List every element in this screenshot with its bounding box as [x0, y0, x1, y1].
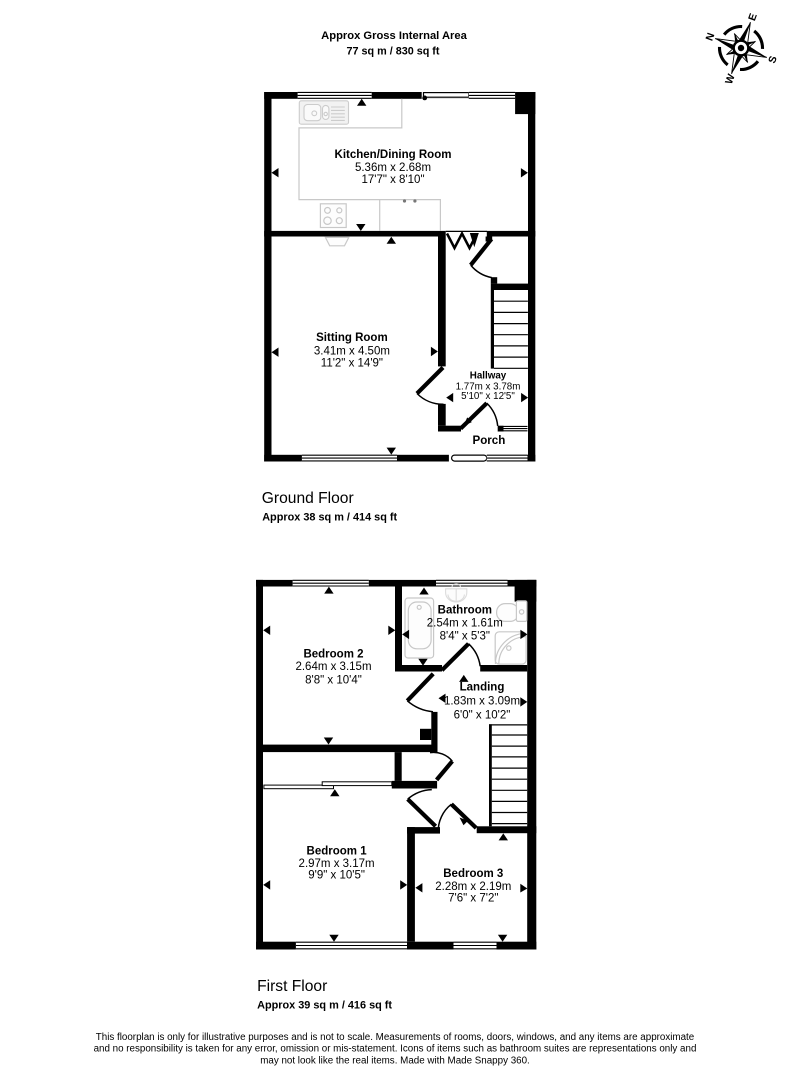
svg-text:8'4" x 5'3": 8'4" x 5'3" — [440, 630, 490, 642]
svg-text:Hallway: Hallway — [470, 370, 507, 381]
svg-text:5.36m x 2.68m: 5.36m x 2.68m — [355, 162, 431, 174]
svg-text:Approx Gross Internal Area: Approx Gross Internal Area — [321, 30, 467, 42]
svg-text:S: S — [766, 54, 780, 65]
svg-text:2.54m x 1.61m: 2.54m x 1.61m — [427, 618, 503, 630]
svg-text:Sitting Room: Sitting Room — [316, 332, 388, 344]
svg-text:may not look like the real ite: may not look like the real items. Made w… — [260, 1055, 530, 1066]
svg-text:Approx 39 sq m / 416 sq ft: Approx 39 sq m / 416 sq ft — [257, 999, 392, 1011]
svg-text:Bathroom: Bathroom — [438, 605, 492, 617]
svg-text:Bedroom 3: Bedroom 3 — [443, 868, 503, 880]
svg-text:9'9" x 10'5": 9'9" x 10'5" — [308, 870, 365, 882]
svg-text:Bedroom 1: Bedroom 1 — [307, 845, 368, 857]
svg-text:E: E — [746, 12, 760, 23]
svg-text:2.97m x 3.17m: 2.97m x 3.17m — [299, 858, 375, 870]
svg-text:6'0" x 10'2": 6'0" x 10'2" — [454, 709, 511, 721]
svg-text:Kitchen/Dining Room: Kitchen/Dining Room — [335, 149, 452, 161]
svg-text:Ground Floor: Ground Floor — [262, 490, 354, 507]
svg-text:Landing: Landing — [460, 682, 505, 694]
svg-text:17'7" x 8'10": 17'7" x 8'10" — [361, 174, 424, 186]
svg-text:W: W — [723, 72, 738, 86]
svg-text:First Floor: First Floor — [257, 978, 327, 995]
svg-text:and no responsibility is taken: and no responsibility is taken for any e… — [94, 1044, 697, 1055]
svg-text:N: N — [704, 31, 718, 42]
svg-text:This floorplan is only for ill: This floorplan is only for illustrative … — [96, 1032, 695, 1043]
svg-text:77 sq m / 830 sq ft: 77 sq m / 830 sq ft — [346, 45, 439, 57]
svg-text:Approx 38 sq m / 414 sq ft: Approx 38 sq m / 414 sq ft — [262, 512, 397, 524]
svg-text:3.41m x 4.50m: 3.41m x 4.50m — [314, 345, 390, 357]
svg-text:7'6" x 7'2": 7'6" x 7'2" — [448, 893, 498, 905]
svg-text:2.28m x 2.19m: 2.28m x 2.19m — [435, 881, 511, 893]
svg-text:Bedroom 2: Bedroom 2 — [303, 648, 363, 660]
svg-text:5'10" x 12'5": 5'10" x 12'5" — [461, 391, 515, 402]
svg-text:8'8" x 10'4": 8'8" x 10'4" — [305, 674, 362, 686]
svg-text:2.64m x 3.15m: 2.64m x 3.15m — [295, 661, 371, 673]
svg-text:1.83m x 3.09m: 1.83m x 3.09m — [444, 696, 520, 708]
svg-text:11'2" x 14'9": 11'2" x 14'9" — [321, 358, 383, 370]
svg-text:Porch: Porch — [472, 434, 505, 447]
